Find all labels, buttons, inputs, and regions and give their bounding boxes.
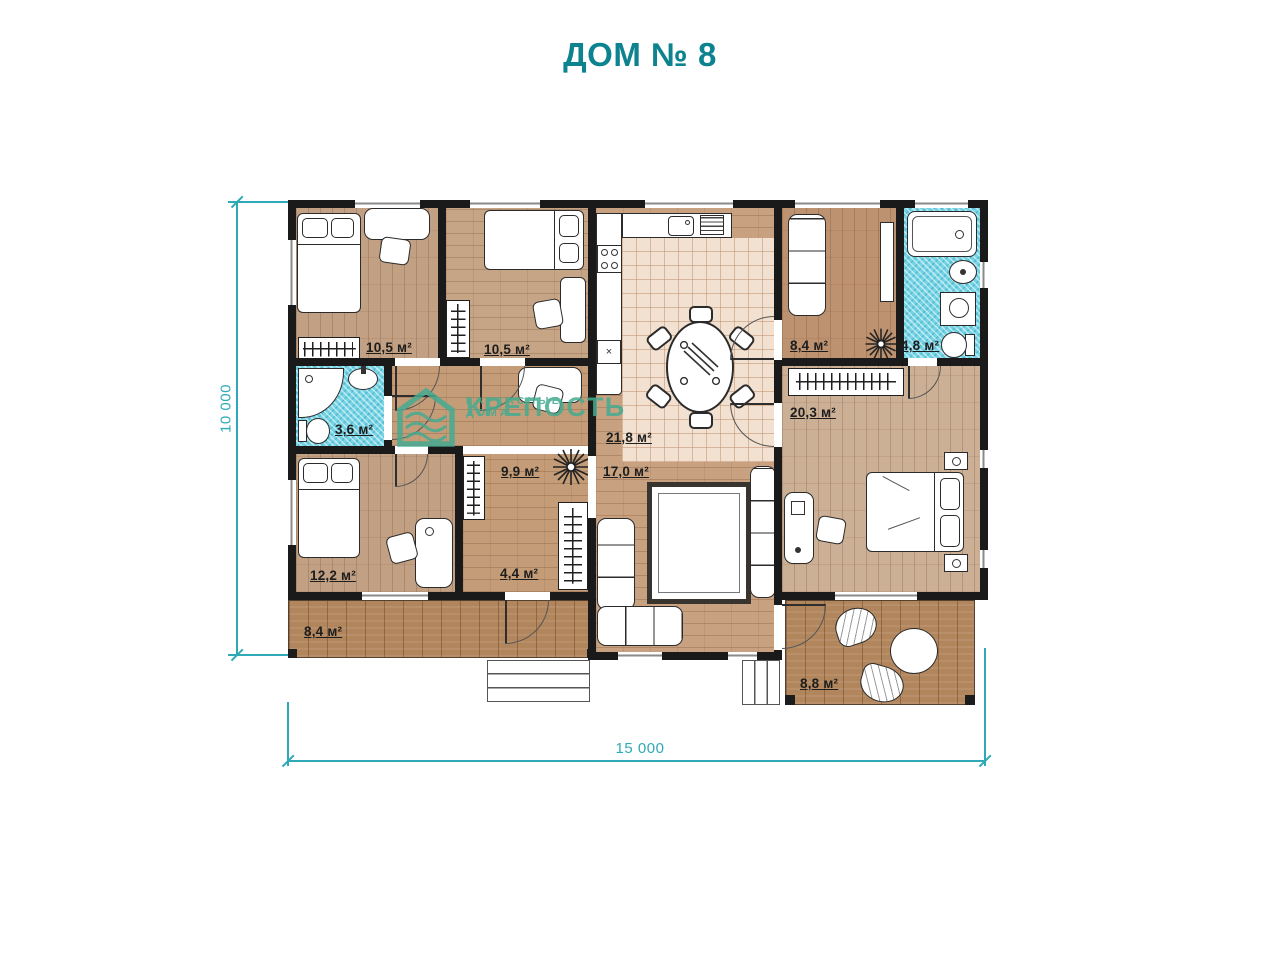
entry-steps-right — [742, 660, 780, 705]
chair — [532, 298, 564, 330]
window — [980, 262, 988, 288]
wall — [455, 452, 463, 592]
area-label-office: 8,4 м² — [790, 338, 828, 353]
logo-tagline-text: КАРКАСНЫЕ ДОМА — [466, 395, 562, 419]
kitchen-sink — [668, 216, 694, 236]
door-opening — [505, 592, 550, 600]
terrace-post — [965, 695, 975, 705]
sink — [348, 368, 378, 390]
wardrobe — [446, 300, 470, 358]
floor-plan: × — [288, 200, 988, 720]
horizontal-dimension-line — [288, 760, 985, 762]
door-opening — [395, 358, 440, 366]
chair — [815, 515, 847, 545]
door-opening — [384, 396, 392, 440]
sink — [949, 260, 977, 284]
window — [645, 200, 733, 208]
bed — [484, 210, 584, 270]
door-opening — [774, 320, 782, 360]
bed — [866, 472, 964, 552]
logo-house-icon — [394, 386, 458, 448]
passage-opening — [588, 456, 596, 518]
wall — [980, 200, 988, 600]
window — [470, 200, 540, 208]
window — [728, 652, 757, 660]
window — [362, 592, 428, 600]
bed — [298, 458, 360, 558]
desk — [560, 277, 586, 343]
area-label-bathroom-ensuite: 4,8 м² — [901, 338, 939, 353]
wall — [588, 208, 596, 366]
stove — [597, 245, 622, 273]
kitchen-cabinet: × — [597, 340, 621, 364]
drying-rack — [700, 215, 724, 235]
desk — [364, 208, 430, 240]
door-opening — [480, 358, 525, 366]
area-label-bedroom-top-left: 10,5 м² — [366, 340, 412, 355]
sofa — [750, 466, 776, 598]
closet — [463, 456, 485, 520]
area-label-bathroom-small: 3,6 м² — [335, 422, 373, 437]
watermark-logo: КРЕПОСТЬ КАРКАСНЫЕ ДОМА — [394, 386, 624, 450]
entry-steps-left — [487, 660, 590, 702]
window — [835, 592, 917, 600]
sofa — [788, 214, 826, 316]
nightstand — [944, 452, 968, 470]
corner-sofa-vertical — [597, 518, 635, 610]
nightstand — [944, 554, 968, 572]
page: { "title": "ДОМ № 8", "watermark": { "br… — [0, 0, 1280, 960]
patio-table — [890, 628, 938, 674]
vertical-dimension-label: 10 000 — [218, 369, 235, 449]
area-label-terrace-right: 8,8 м² — [800, 676, 838, 691]
wall — [782, 358, 988, 366]
window — [288, 240, 296, 305]
window — [980, 550, 988, 568]
chair — [378, 236, 411, 266]
vertical-dimension-line — [236, 202, 238, 655]
closet — [558, 502, 588, 590]
horizontal-dimension-label: 15 000 — [600, 740, 680, 757]
area-label-bedroom-top-middle: 10,5 м² — [484, 342, 530, 357]
desk — [784, 492, 814, 564]
wall — [438, 208, 446, 366]
area-label-terrace-left: 8,4 м² — [304, 624, 342, 639]
extension-line — [984, 648, 986, 766]
window — [915, 200, 968, 208]
cabinet — [880, 222, 894, 302]
area-label-entry-hall: 4,4 м² — [500, 566, 538, 581]
page-title: ДОМ № 8 — [0, 36, 1280, 74]
door-opening — [774, 403, 782, 447]
area-label-bedroom-master: 20,3 м² — [790, 405, 836, 420]
desk — [415, 518, 453, 588]
window — [795, 200, 880, 208]
window — [980, 450, 988, 468]
bed — [297, 213, 361, 313]
window — [618, 652, 662, 660]
area-label-kitchen-dining: 21,8 м² — [606, 430, 652, 445]
plant — [863, 326, 899, 362]
area-label-hallway: 9,9 м² — [501, 464, 539, 479]
terrace-post — [785, 695, 795, 705]
area-label-bedroom-bottom-left: 12,2 м² — [310, 568, 356, 583]
corner-sofa-horizontal — [597, 606, 683, 646]
door-opening — [774, 605, 782, 650]
kitchen-counter — [596, 213, 622, 395]
washing-machine — [940, 292, 976, 326]
bathtub — [907, 211, 977, 257]
area-label-living-room: 17,0 м² — [603, 464, 649, 479]
window — [355, 200, 420, 208]
window — [288, 480, 296, 545]
rug — [647, 482, 751, 604]
wardrobe — [788, 368, 904, 396]
plant — [550, 446, 592, 488]
door-opening — [908, 358, 937, 366]
wall — [288, 358, 596, 366]
terrace-post — [288, 649, 297, 658]
extension-line — [287, 702, 289, 766]
